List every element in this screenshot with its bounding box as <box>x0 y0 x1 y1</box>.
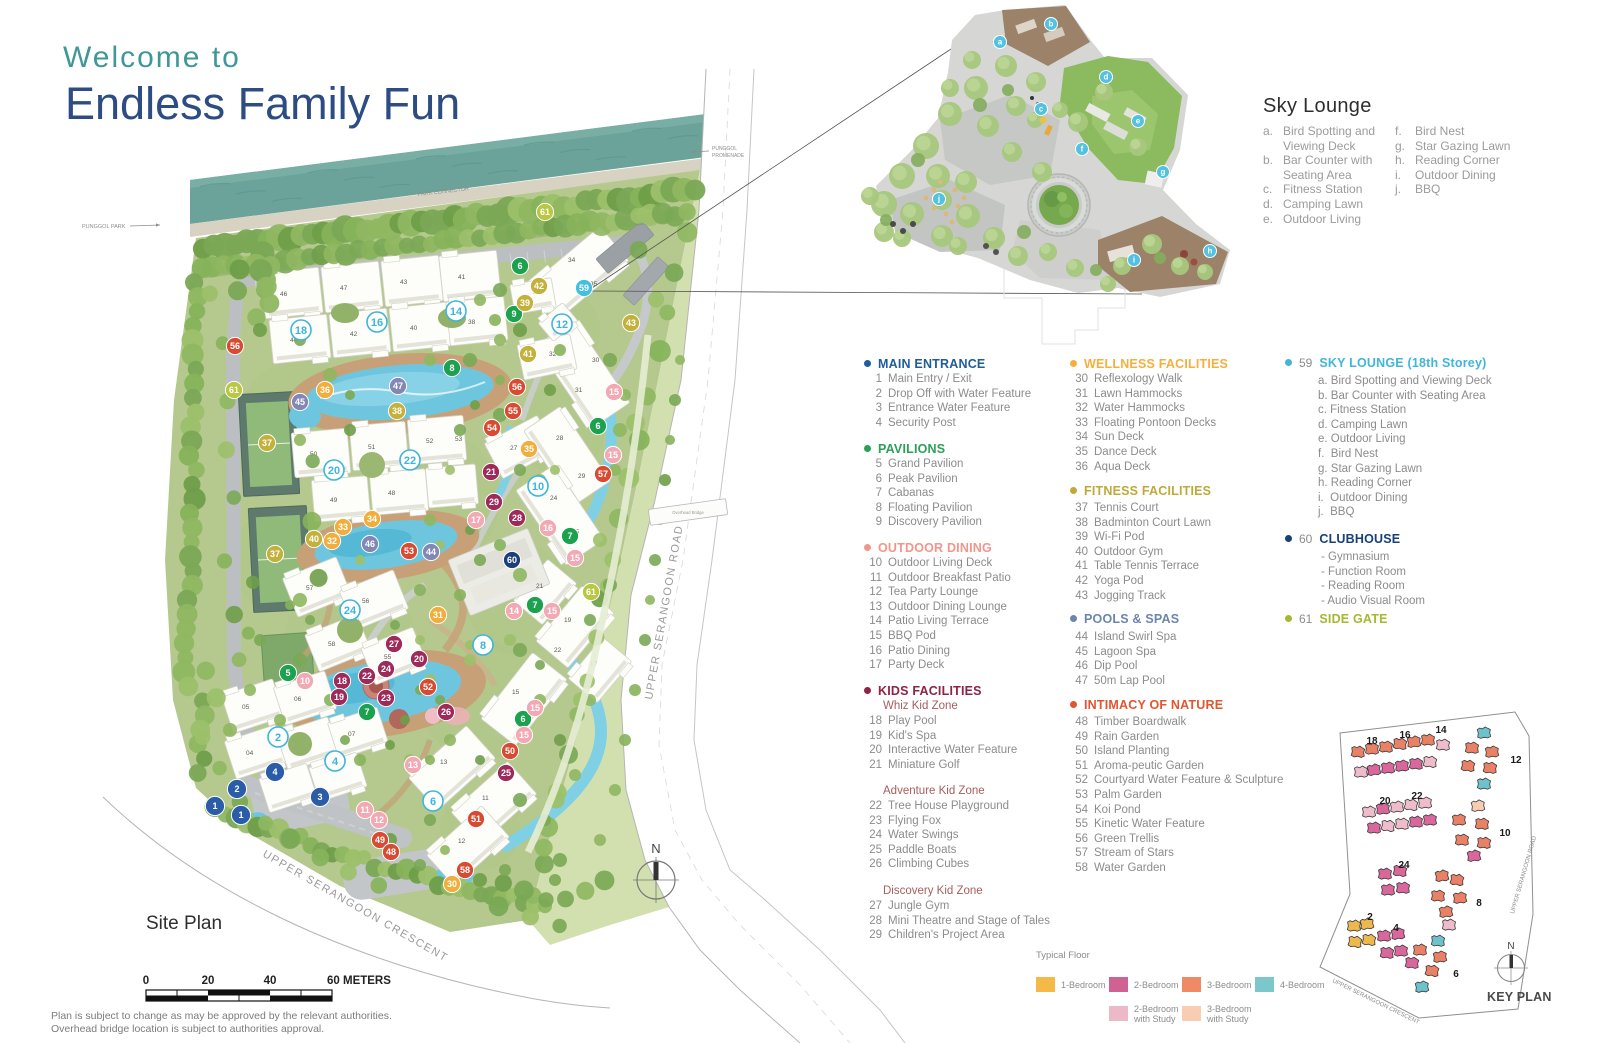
svg-text:39: 39 <box>520 298 530 308</box>
svg-text:59: 59 <box>579 283 589 293</box>
svg-text:37: 37 <box>270 549 280 559</box>
svg-text:49: 49 <box>330 497 338 504</box>
svg-text:6: 6 <box>517 261 522 271</box>
svg-text:61: 61 <box>229 385 239 395</box>
svg-text:41: 41 <box>458 274 466 281</box>
svg-text:19: 19 <box>564 617 572 624</box>
svg-text:18: 18 <box>1366 736 1378 747</box>
svg-text:11: 11 <box>360 805 370 815</box>
svg-text:h: h <box>1208 247 1213 256</box>
svg-text:34: 34 <box>367 514 377 524</box>
svg-text:51: 51 <box>471 814 481 824</box>
svg-text:31: 31 <box>433 610 443 620</box>
svg-text:21: 21 <box>486 467 496 477</box>
svg-text:14: 14 <box>509 606 519 616</box>
svg-text:54: 54 <box>487 423 497 433</box>
svg-text:21: 21 <box>536 583 544 590</box>
svg-text:61: 61 <box>586 587 596 597</box>
svg-text:56: 56 <box>512 382 522 392</box>
svg-text:2: 2 <box>275 732 281 744</box>
svg-text:13: 13 <box>408 760 418 770</box>
svg-text:22: 22 <box>1411 791 1423 802</box>
svg-text:j: j <box>937 195 940 204</box>
svg-text:60: 60 <box>507 555 517 565</box>
svg-text:56: 56 <box>230 341 240 351</box>
svg-text:15: 15 <box>547 606 557 616</box>
svg-text:40: 40 <box>309 534 319 544</box>
svg-text:46: 46 <box>280 291 288 298</box>
svg-text:42: 42 <box>534 281 544 291</box>
svg-text:40: 40 <box>410 325 418 332</box>
svg-text:0: 0 <box>143 975 149 987</box>
svg-text:22: 22 <box>404 455 416 467</box>
svg-text:24: 24 <box>344 605 357 617</box>
svg-text:15: 15 <box>570 553 580 563</box>
svg-text:6: 6 <box>595 421 600 431</box>
svg-text:16: 16 <box>371 317 383 329</box>
svg-text:15: 15 <box>519 730 529 740</box>
svg-text:PUNGGOL PARK: PUNGGOL PARK <box>82 224 126 230</box>
svg-text:N: N <box>1507 941 1514 952</box>
svg-text:38: 38 <box>392 406 402 416</box>
svg-text:2: 2 <box>1367 912 1373 923</box>
svg-text:11: 11 <box>482 795 489 802</box>
svg-text:24: 24 <box>1398 860 1410 871</box>
svg-text:53: 53 <box>455 436 463 443</box>
svg-text:14: 14 <box>1435 725 1447 736</box>
svg-text:53: 53 <box>404 546 414 556</box>
svg-text:14: 14 <box>450 306 463 318</box>
svg-text:Overhead Bridge: Overhead Bridge <box>672 510 704 515</box>
svg-text:4: 4 <box>272 767 277 777</box>
svg-text:18: 18 <box>295 325 307 337</box>
svg-text:48: 48 <box>388 490 396 497</box>
svg-text:a: a <box>998 38 1003 47</box>
svg-text:20: 20 <box>202 975 215 987</box>
svg-text:13: 13 <box>440 759 448 766</box>
svg-text:51: 51 <box>368 444 376 451</box>
svg-text:7: 7 <box>567 531 572 541</box>
svg-text:42: 42 <box>350 331 358 338</box>
svg-text:12: 12 <box>458 838 466 845</box>
svg-text:44: 44 <box>426 547 436 557</box>
svg-text:12: 12 <box>374 815 384 825</box>
svg-text:b: b <box>1049 20 1054 29</box>
svg-text:47: 47 <box>393 381 403 391</box>
svg-text:16: 16 <box>543 523 553 533</box>
svg-text:58: 58 <box>460 865 470 875</box>
svg-text:52: 52 <box>426 438 434 445</box>
svg-text:43: 43 <box>400 279 408 286</box>
svg-text:26: 26 <box>441 707 451 717</box>
svg-text:35: 35 <box>524 444 534 454</box>
svg-text:38: 38 <box>468 319 476 326</box>
svg-text:46: 46 <box>365 539 375 549</box>
svg-text:52: 52 <box>423 682 433 692</box>
svg-text:c: c <box>1039 105 1044 114</box>
svg-text:10: 10 <box>532 481 544 493</box>
svg-text:6: 6 <box>430 796 436 808</box>
svg-text:4: 4 <box>1393 923 1399 934</box>
svg-text:06: 06 <box>294 696 302 703</box>
svg-text:25: 25 <box>501 768 511 778</box>
svg-text:9: 9 <box>511 309 516 319</box>
svg-text:PROMENADE: PROMENADE <box>712 153 745 159</box>
svg-text:30: 30 <box>447 879 457 889</box>
svg-text:12: 12 <box>1510 755 1522 766</box>
svg-text:6: 6 <box>520 714 525 724</box>
svg-text:30: 30 <box>592 357 600 364</box>
svg-text:34: 34 <box>568 257 576 264</box>
svg-text:16: 16 <box>1399 730 1411 741</box>
svg-text:61: 61 <box>540 207 550 217</box>
svg-text:57: 57 <box>598 469 608 479</box>
svg-text:31: 31 <box>575 387 583 394</box>
svg-text:27: 27 <box>510 445 518 452</box>
svg-text:i: i <box>1133 256 1135 265</box>
svg-text:22: 22 <box>554 647 562 654</box>
svg-text:29: 29 <box>489 497 499 507</box>
svg-text:07: 07 <box>348 731 356 738</box>
svg-text:47: 47 <box>340 285 348 292</box>
svg-text:28: 28 <box>556 435 564 442</box>
svg-text:6: 6 <box>1453 969 1459 980</box>
svg-text:58: 58 <box>328 641 336 648</box>
svg-text:57: 57 <box>306 585 314 592</box>
svg-text:d: d <box>1104 73 1109 82</box>
svg-text:45: 45 <box>295 397 305 407</box>
svg-text:04: 04 <box>246 750 254 757</box>
svg-text:KEY PLAN: KEY PLAN <box>1487 990 1552 1004</box>
svg-text:15: 15 <box>608 450 618 460</box>
svg-text:32: 32 <box>327 536 337 546</box>
svg-text:7: 7 <box>532 600 537 610</box>
svg-text:36: 36 <box>320 385 330 395</box>
svg-text:19: 19 <box>334 692 344 702</box>
svg-text:27: 27 <box>389 639 399 649</box>
svg-text:33: 33 <box>338 522 348 532</box>
svg-text:41: 41 <box>523 349 533 359</box>
svg-text:29: 29 <box>578 473 586 480</box>
svg-text:18: 18 <box>337 676 347 686</box>
svg-text:20: 20 <box>414 654 424 664</box>
svg-text:10: 10 <box>300 676 310 686</box>
svg-text:2: 2 <box>234 784 239 794</box>
svg-text:15: 15 <box>512 689 520 696</box>
svg-text:48: 48 <box>386 847 396 857</box>
svg-text:3: 3 <box>317 792 322 802</box>
svg-text:5: 5 <box>285 668 290 678</box>
svg-text:10: 10 <box>1499 828 1511 839</box>
svg-text:20: 20 <box>328 465 340 477</box>
svg-text:15: 15 <box>609 387 619 397</box>
svg-text:8: 8 <box>1476 898 1482 909</box>
svg-text:7: 7 <box>364 707 369 717</box>
svg-text:55: 55 <box>508 406 518 416</box>
svg-text:PUNGGOL: PUNGGOL <box>712 146 737 152</box>
svg-text:17: 17 <box>471 515 481 525</box>
svg-text:N: N <box>651 841 660 856</box>
svg-text:20: 20 <box>1379 796 1391 807</box>
svg-text:12: 12 <box>556 319 568 331</box>
svg-text:50: 50 <box>505 746 515 756</box>
svg-text:8: 8 <box>449 363 454 373</box>
svg-text:e: e <box>1136 117 1141 126</box>
svg-text:05: 05 <box>242 704 250 711</box>
svg-text:22: 22 <box>362 671 372 681</box>
svg-text:1: 1 <box>238 810 243 820</box>
svg-text:f: f <box>1081 145 1084 154</box>
svg-text:28: 28 <box>512 513 522 523</box>
svg-text:49: 49 <box>375 835 385 845</box>
svg-text:43: 43 <box>626 318 636 328</box>
svg-text:4: 4 <box>332 756 339 768</box>
svg-text:g: g <box>1161 168 1166 177</box>
svg-text:40: 40 <box>264 975 277 987</box>
svg-text:24: 24 <box>550 495 558 502</box>
svg-text:23: 23 <box>381 693 391 703</box>
svg-text:56: 56 <box>362 598 370 605</box>
svg-text:60 METERS: 60 METERS <box>327 975 391 987</box>
svg-text:8: 8 <box>480 640 486 652</box>
svg-text:37: 37 <box>262 438 272 448</box>
svg-text:1: 1 <box>212 801 217 811</box>
svg-text:15: 15 <box>530 703 540 713</box>
svg-text:24: 24 <box>381 664 391 674</box>
